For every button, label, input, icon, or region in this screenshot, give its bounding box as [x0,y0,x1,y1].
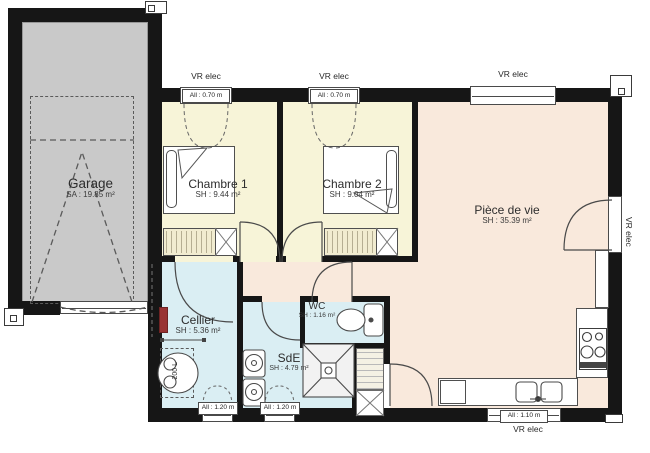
electric-box-southeast [605,414,623,423]
wall-bedrooms-south-d [322,256,418,262]
electric-box-top [145,1,167,14]
wardrobe-chambre2-hangers [327,231,374,253]
label-chambre1: Chambre 1 SH : 9.44 m² [168,178,268,200]
label-cellier: Cellier SH : 5.36 m² [158,314,238,336]
piece-de-vie-name: Pièce de vie [457,204,557,217]
kitchen-cabinet [440,380,466,404]
chambre2-area: SH : 9.04 m² [302,191,402,200]
wc-area: SH : 1.16 m² [291,312,343,319]
chambre1-area: SH : 9.44 m² [168,191,268,200]
garage-area: SA : 19.85 m² [38,191,143,200]
technical-duct [356,348,384,390]
wall-ch2-living [412,102,418,262]
wardrobe-chambre1-hangers [166,231,213,253]
water-heater-label: 200 L [172,362,179,380]
wall-ch1-ch2 [277,102,283,262]
label-garage: Garage SA : 19.85 m² [38,176,143,200]
sill-label-sde-window: All : 1.20 m [260,402,300,415]
sill-label-chambre2: All : 0.70 m [310,89,358,103]
window-living [470,86,556,105]
wall-bedrooms-south-c [276,256,286,262]
wardrobe-chambre1-shelf [215,228,237,256]
technical-duct-lower [356,390,384,416]
label-wc: WC SH : 1.16 m² [291,301,343,319]
wall-hall-south-a [243,296,262,302]
house-east-wall [608,88,622,422]
sill-label-chambre1: All : 0.70 m [182,89,230,103]
wc-name: WC [291,301,343,312]
label-chambre2: Chambre 2 SH : 9.04 m² [302,178,402,200]
wall-duct-east [384,302,390,364]
sde-area: SH : 4.79 m² [253,365,325,373]
sill-label-kitchen-window: All : 1.10 m [500,410,548,423]
cellier-name: Cellier [158,314,238,327]
wardrobe-chambre2-shelf [376,228,398,256]
chambre2-name: Chambre 2 [302,178,402,191]
sde-name: SdE [253,352,325,365]
shutter-label-chambre2: VR elec [304,71,364,81]
garage-north-wall [8,8,162,22]
chambre1-name: Chambre 1 [168,178,268,191]
stove-panel [579,328,607,370]
piece-de-vie-area: SH : 35.39 m² [457,217,557,226]
garage-west-wall [8,8,22,315]
entrance-door-opening [608,196,622,253]
cellier-area: SH : 5.36 m² [158,327,238,336]
shutter-label-chambre1: VR elec [176,71,236,81]
label-sde: SdE SH : 4.79 m² [253,352,325,373]
passage [390,302,418,408]
garage-name: Garage [38,176,143,191]
garage-door-opening [60,301,148,314]
sill-label-cellier-window: All : 1.20 m [198,402,238,415]
electric-box-southwest [4,308,24,326]
wall-bedrooms-south-a [162,256,175,262]
kitchen-tall-unit [595,250,609,308]
label-piece-de-vie: Pièce de vie SH : 35.39 m² [457,204,557,226]
floor-plan: VR elec VR elec VR elec VR elec VR elec … [0,0,650,453]
shutter-label-living: VR elec [483,69,543,79]
shutter-label-entrance: VR elec [624,206,634,258]
shutter-label-kitchen: VR elec [500,424,556,434]
electric-box-northeast [610,75,632,97]
hallway [240,262,418,302]
